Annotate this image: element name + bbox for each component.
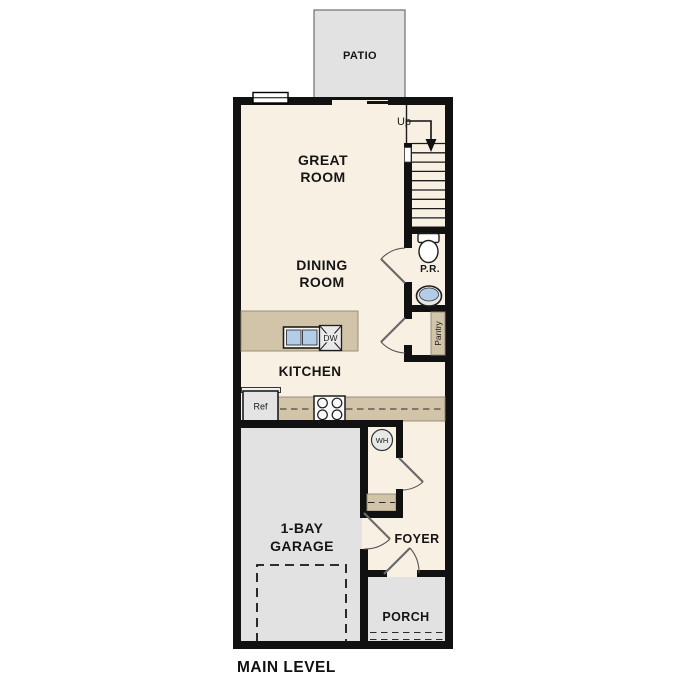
great-room-label-line1: GREAT: [298, 152, 348, 168]
toilet-bowl: [419, 241, 438, 263]
refrigerator-label: Ref: [253, 402, 268, 412]
kitchen-label: KITCHEN: [279, 364, 342, 379]
porch-label: PORCH: [382, 610, 429, 624]
pantry-label: Pantry: [433, 320, 443, 345]
plan-title: MAIN LEVEL: [237, 659, 336, 676]
refrigerator: Ref: [242, 388, 281, 422]
great-room-label-line2: ROOM: [300, 169, 345, 185]
kitchen-island: DW: [241, 311, 358, 351]
patio-label: PATIO: [343, 50, 377, 62]
stairs-up-label: Up: [397, 116, 411, 128]
water-heater-label: WH: [376, 436, 389, 445]
floor-plan-drawing: PATIO: [0, 0, 687, 687]
dining-room-label-line2: ROOM: [299, 274, 344, 290]
stove: [314, 396, 345, 421]
kitchen-sink: [284, 327, 321, 348]
floor-plan: PATIO: [0, 0, 687, 687]
garage-label-line2: GARAGE: [270, 538, 334, 554]
stair-nosing: [405, 148, 412, 163]
powder-room-label: P.R.: [420, 264, 440, 275]
dishwasher-label: DW: [323, 333, 337, 343]
bathroom-sink: [417, 286, 442, 306]
dishwasher: DW: [320, 326, 342, 351]
window: [253, 93, 288, 104]
foyer-label: FOYER: [394, 532, 439, 546]
dining-room-label-line1: DINING: [296, 257, 347, 273]
garage-label-line1: 1-BAY: [281, 520, 324, 536]
